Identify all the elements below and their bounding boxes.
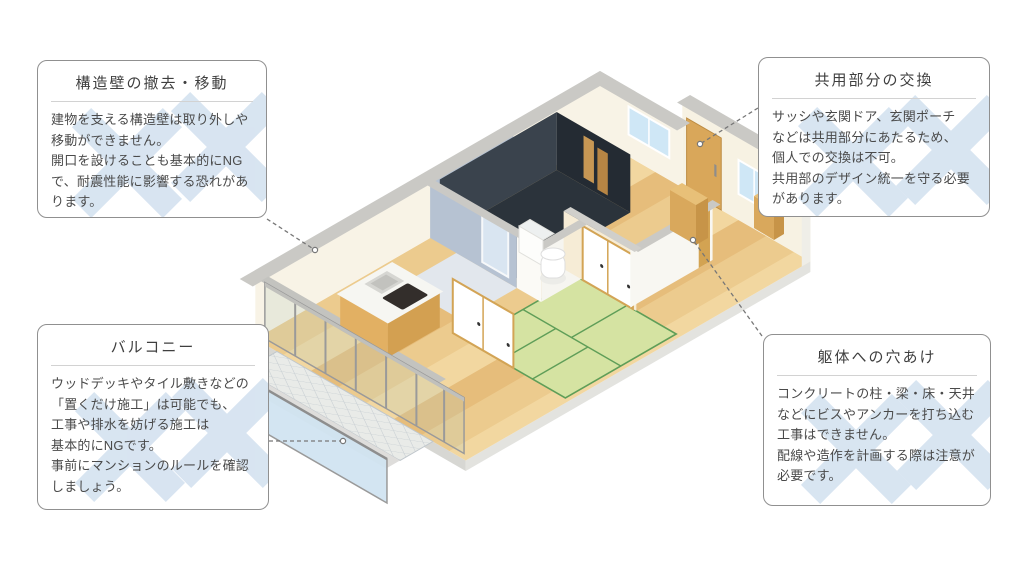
callout-title: バルコニー (38, 336, 268, 357)
callout-common-area: 共用部分の交換 サッシや玄関ドア、玄関ポーチ などは共用部分にあたるため、 個人… (758, 57, 990, 217)
connector-dot-icon (690, 237, 695, 242)
callout-title: 共用部分の交換 (759, 69, 989, 90)
divider (51, 101, 253, 102)
callout-title: 躯体への穴あけ (764, 346, 990, 367)
callout-structure-drilling: 躯体への穴あけ コンクリートの柱・梁・床・天井 などにビスやアンカーを打ち込む … (763, 334, 991, 506)
callout-body: ウッドデッキやタイル敷きなどの 「置くだけ施工」は可能でも、 工事や排水を妨げる… (38, 374, 268, 497)
callout-body: 建物を支える構造壁は取り外しや 移動ができません。 開口を設けることも基本的にN… (38, 110, 266, 213)
door-handle-icon (714, 164, 716, 177)
divider (51, 365, 255, 366)
callout-title: 構造壁の撤去・移動 (38, 72, 266, 93)
callout-balcony: バルコニー ウッドデッキやタイル敷きなどの 「置くだけ施工」は可能でも、 工事や… (37, 324, 269, 510)
infographic-canvas: 構造壁の撤去・移動 建物を支える構造壁は取り外しや 移動ができません。 開口を設… (0, 0, 1024, 576)
callout-body: コンクリートの柱・梁・床・天井 などにビスやアンカーを打ち込む 工事はできません… (764, 384, 990, 487)
divider (772, 98, 976, 99)
bath-cabinet-icon (597, 148, 607, 196)
connector-dot-icon (312, 247, 317, 252)
callout-body: サッシや玄関ドア、玄関ポーチ などは共用部分にあたるため、 個人での交換は不可。… (759, 107, 989, 210)
connector-dot-icon (697, 141, 702, 146)
divider (777, 375, 977, 376)
toilet-icon (540, 248, 566, 285)
bath-cabinet-icon (584, 136, 594, 184)
connector-dot-icon (340, 438, 345, 443)
callout-structural-wall: 構造壁の撤去・移動 建物を支える構造壁は取り外しや 移動ができません。 開口を設… (37, 60, 267, 218)
